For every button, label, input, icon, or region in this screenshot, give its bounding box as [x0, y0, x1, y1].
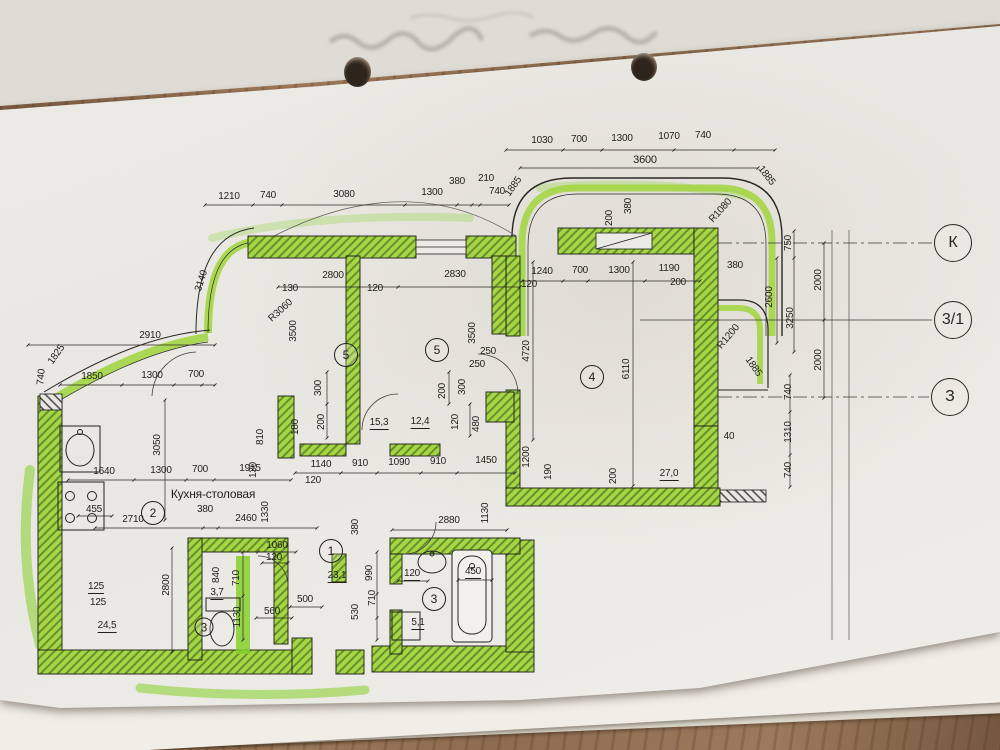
room-area-label: 27,0	[660, 469, 679, 481]
dimension-label: 3080	[333, 190, 354, 200]
dimension-label: 6110	[622, 359, 632, 380]
dimension-label: 1330	[261, 501, 271, 522]
dimension-label: 250	[480, 347, 496, 357]
dimension-label: 190	[544, 464, 554, 480]
dimension-label: 1300	[421, 188, 442, 198]
room-number-marker: 5	[425, 338, 449, 362]
room-number-marker: 3	[195, 618, 214, 637]
dimension-label: 2800	[162, 574, 172, 595]
dimension-label: 1300	[150, 466, 171, 476]
dimension-label: 560	[264, 607, 280, 617]
dimension-label: 130	[282, 284, 298, 294]
dimension-label: 3500	[289, 320, 299, 341]
dimension-label: 710	[368, 590, 378, 606]
dimension-label: 2600	[765, 286, 775, 307]
dimension-label: 700	[572, 266, 588, 276]
dimension-label: 2000	[814, 349, 824, 370]
room-area-label: 3,7	[210, 588, 223, 600]
dimension-label: 740	[784, 462, 794, 478]
dimension-label: 380	[449, 177, 465, 187]
dimension-label: 3500	[468, 322, 478, 343]
dimension-label: 1300	[608, 266, 629, 276]
room-area-label: 5,1	[411, 618, 424, 630]
dimension-label: 1200	[522, 446, 532, 467]
dimension-label: 2800	[322, 271, 343, 281]
dimension-label: 1450	[475, 456, 496, 466]
dimension-label: 1130	[233, 607, 243, 628]
dimension-label: 3250	[786, 307, 796, 328]
room-area-label: 12,4	[411, 417, 430, 429]
dimension-label: 200	[609, 468, 619, 484]
dimension-label: 2910	[139, 331, 160, 341]
dimension-label: 120	[305, 476, 321, 486]
dimension-label: 3140	[194, 269, 210, 292]
dimension-label: 740	[36, 369, 47, 386]
room-area-label: 120	[404, 569, 420, 581]
dimension-label: 740	[695, 131, 711, 141]
dimension-label: 2830	[444, 270, 465, 280]
dimension-label: 120	[266, 553, 282, 563]
dimension-labels-layer: 103070013001070740360018851885R108020038…	[0, 0, 1000, 750]
dimension-label: 1300	[611, 134, 632, 144]
dimension-label: 380	[197, 505, 213, 515]
dimension-label: 1850	[81, 372, 102, 382]
room-area-label: 450	[465, 567, 481, 579]
axis-marker: К	[934, 224, 972, 262]
punch-hole	[631, 53, 657, 81]
dimension-label: 740	[489, 187, 505, 197]
dimension-label: 300	[314, 380, 324, 396]
dimension-label: 3050	[153, 434, 163, 455]
radius-label: R1200	[716, 323, 742, 351]
dimension-label: 130	[249, 462, 259, 478]
dimension-label: 1240	[531, 267, 552, 277]
dimension-label: 120	[521, 280, 537, 290]
dimension-label: 700	[188, 370, 204, 380]
dimension-label: 1140	[311, 460, 332, 470]
dimension-label: 740	[784, 384, 794, 400]
dimension-label: 1885	[743, 355, 763, 378]
dimension-label: 125	[90, 598, 106, 608]
dimension-label: 750	[784, 235, 794, 251]
dimension-label: 1210	[218, 192, 239, 202]
dimension-label: 1310	[784, 421, 794, 442]
dimension-label: 710	[232, 570, 242, 586]
dimension-label: 200	[317, 414, 327, 430]
punch-hole	[344, 57, 371, 87]
room-area-label: 23,1	[328, 571, 347, 583]
radius-label: R1080	[708, 197, 734, 225]
dimension-label: 1190	[659, 264, 680, 274]
dimension-label: 1090	[388, 458, 409, 468]
dimension-label: 210	[478, 174, 494, 184]
dimension-label: 455	[86, 505, 102, 515]
dimension-label: 250	[469, 360, 485, 370]
dimension-label: 480	[472, 416, 482, 432]
dimension-label: 740	[260, 191, 276, 201]
dimension-label: 1885	[504, 175, 524, 198]
room-number-marker: 2	[141, 501, 165, 525]
dimension-label: 180	[291, 419, 301, 435]
dimension-label: 2710	[122, 515, 143, 525]
dimension-label: 40	[724, 432, 735, 442]
room-area-label: 24,5	[98, 621, 117, 633]
dimension-label: Кухня-столовая	[171, 489, 255, 499]
dimension-label: 810	[256, 429, 266, 445]
dimension-label: 700	[192, 465, 208, 475]
dimension-label: 200	[438, 383, 448, 399]
dimension-label: 1640	[93, 467, 114, 477]
dimension-label: 2000	[814, 269, 824, 290]
dimension-label: 120	[367, 284, 383, 294]
room-area-label: 15,3	[370, 418, 389, 430]
dimension-label: 1070	[658, 132, 679, 142]
room-area-label: 125	[88, 582, 104, 594]
axis-marker: 3/1	[934, 301, 972, 339]
room-number-marker: 1	[319, 539, 343, 563]
dimension-label: 3600	[633, 155, 657, 165]
dimension-label: 1030	[531, 136, 552, 146]
room-number-marker: 5	[334, 343, 358, 367]
dimension-label: 2460	[235, 514, 256, 524]
dimension-label: 840	[212, 567, 222, 583]
dimension-label: 990	[365, 565, 375, 581]
dimension-label: 1060	[266, 541, 287, 551]
dimension-label: 1825	[47, 343, 67, 366]
dimension-label: 380	[351, 519, 361, 535]
dimension-label: 910	[352, 459, 368, 469]
room-number-marker: 3	[422, 587, 446, 611]
dimension-label: 200	[605, 210, 615, 226]
dimension-label: 1130	[481, 503, 491, 524]
dimension-label: 380	[624, 198, 634, 214]
photo-of-floor-plan: 103070013001070740360018851885R108020038…	[0, 0, 1000, 750]
dimension-label: 910	[430, 457, 446, 467]
dimension-label: 380	[727, 261, 743, 271]
dimension-label: 2880	[438, 516, 459, 526]
dimension-label: 4720	[522, 340, 532, 361]
dimension-label: 530	[351, 604, 361, 620]
dimension-label: 300	[458, 379, 468, 395]
dimension-label: 200	[670, 278, 686, 288]
dimension-label: 1885	[755, 164, 776, 187]
dimension-label: 700	[571, 135, 587, 145]
axis-marker: З	[931, 378, 969, 416]
dimension-label: 120	[451, 414, 461, 430]
dimension-label: 500	[297, 595, 313, 605]
room-number-marker: 4	[580, 365, 604, 389]
dimension-label: 1300	[141, 371, 162, 381]
